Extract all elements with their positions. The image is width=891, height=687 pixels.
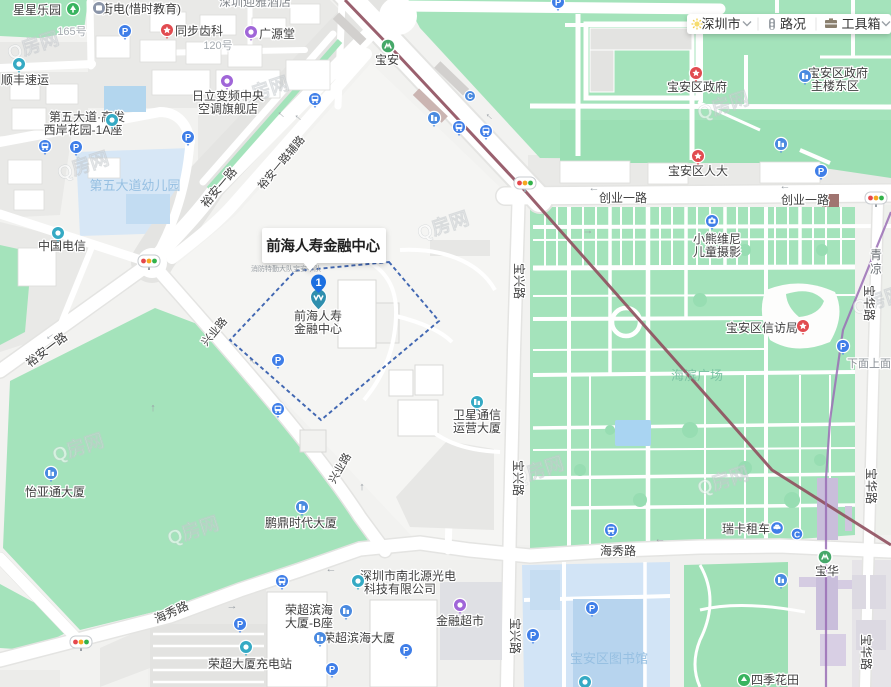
svg-text:中国电信: 中国电信 (38, 238, 86, 253)
svg-text:运营大厦: 运营大厦 (453, 421, 501, 435)
svg-text:前海人寿: 前海人寿 (294, 308, 342, 323)
svg-text:→: → (227, 600, 238, 612)
svg-text:↑: ↑ (582, 229, 594, 235)
svg-text:165号: 165号 (57, 25, 86, 38)
svg-text:宝兴路: 宝兴路 (511, 460, 526, 496)
svg-text:前海人寿金融中心: 前海人寿金融中心 (266, 237, 380, 255)
svg-text:凉: 凉 (870, 261, 882, 276)
svg-text:深圳市南北源光电: 深圳市南北源光电 (360, 568, 456, 583)
svg-text:工具箱: 工具箱 (841, 17, 880, 32)
svg-text:海秀路: 海秀路 (600, 543, 636, 558)
svg-text:120号: 120号 (203, 39, 232, 52)
svg-text:宝华路: 宝华路 (862, 285, 877, 321)
svg-text:空调旗舰店: 空调旗舰店 (198, 101, 258, 116)
svg-text:怡亚通大厦: 怡亚通大厦 (25, 485, 85, 499)
svg-text:金融中心: 金融中心 (294, 321, 342, 336)
svg-text:↑: ↑ (359, 481, 365, 493)
svg-text:主楼东区: 主楼东区 (811, 78, 859, 93)
svg-text:海滨广场: 海滨广场 (671, 368, 723, 383)
svg-text:街电(惜时教育): 街电(惜时教育) (101, 1, 181, 16)
svg-text:←: ← (589, 182, 600, 194)
svg-text:宝华路: 宝华路 (859, 634, 874, 670)
svg-text:瑞卡租车: 瑞卡租车 (722, 521, 770, 536)
svg-text:荣超大厦充电站: 荣超大厦充电站 (208, 656, 292, 671)
svg-text:顺丰速运: 顺丰速运 (1, 73, 49, 87)
svg-text:宝兴路: 宝兴路 (508, 618, 523, 654)
svg-text:宝华路: 宝华路 (864, 468, 879, 504)
svg-text:←: ← (655, 533, 666, 545)
svg-text:←: ← (326, 563, 337, 575)
svg-text:创业一路: 创业一路 (781, 192, 829, 207)
svg-text:C: C (467, 92, 473, 101)
svg-text:路况: 路况 (780, 17, 806, 32)
svg-text:↑: ↑ (150, 402, 156, 414)
svg-text:C: C (794, 529, 800, 539)
svg-text:四季花田: 四季花田 (751, 672, 799, 687)
svg-text:宝安区政府: 宝安区政府 (808, 65, 868, 80)
svg-text:下面上面: 下面上面 (847, 357, 891, 370)
svg-text:荣超滨海: 荣超滨海 (285, 602, 333, 617)
svg-text:宝安区信访局: 宝安区信访局 (726, 320, 798, 335)
svg-text:大厦-B座: 大厦-B座 (285, 615, 333, 630)
svg-text:深圳迎雅酒店: 深圳迎雅酒店 (219, 0, 291, 9)
svg-text:广源堂: 广源堂 (259, 27, 295, 41)
svg-text:儿童摄影: 儿童摄影 (693, 244, 741, 259)
svg-text:日立变频中央: 日立变频中央 (192, 88, 264, 103)
svg-text:星星乐园: 星星乐园 (13, 3, 61, 17)
svg-text:宝安: 宝安 (375, 52, 399, 67)
svg-text:荣超滨海大厦: 荣超滨海大厦 (323, 630, 395, 645)
svg-text:宝安区政府: 宝安区政府 (667, 79, 727, 94)
svg-text:深圳市: 深圳市 (701, 17, 740, 32)
svg-text:宝安区人大: 宝安区人大 (668, 163, 728, 178)
svg-text:小熊维尼: 小熊维尼 (693, 231, 741, 246)
svg-text:科技有限公司: 科技有限公司 (364, 582, 436, 596)
svg-text:第五大道幼儿园: 第五大道幼儿园 (89, 178, 180, 193)
svg-text:金融超市: 金融超市 (436, 613, 484, 628)
svg-text:1: 1 (315, 277, 321, 289)
svg-text:同步齿科: 同步齿科 (175, 24, 223, 38)
svg-text:宝安区图书馆: 宝安区图书馆 (570, 651, 648, 666)
svg-text:←: ← (780, 180, 791, 192)
svg-text:宝兴路: 宝兴路 (512, 263, 527, 299)
svg-text:青: 青 (870, 248, 882, 262)
svg-text:鹏鼎时代大厦: 鹏鼎时代大厦 (265, 516, 337, 530)
svg-text:创业一路: 创业一路 (599, 190, 647, 205)
svg-text:宝华: 宝华 (815, 564, 839, 578)
